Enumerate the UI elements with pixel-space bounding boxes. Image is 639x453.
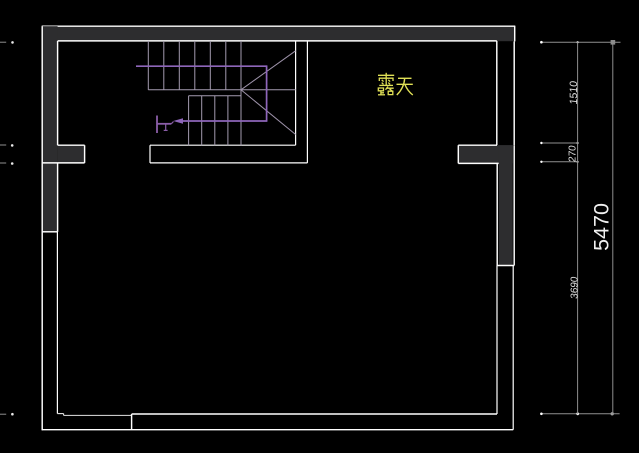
svg-text:3690: 3690: [570, 276, 581, 300]
svg-text:1510: 1510: [568, 80, 580, 105]
svg-text:270: 270: [568, 144, 579, 162]
svg-text:5470: 5470: [590, 203, 614, 251]
